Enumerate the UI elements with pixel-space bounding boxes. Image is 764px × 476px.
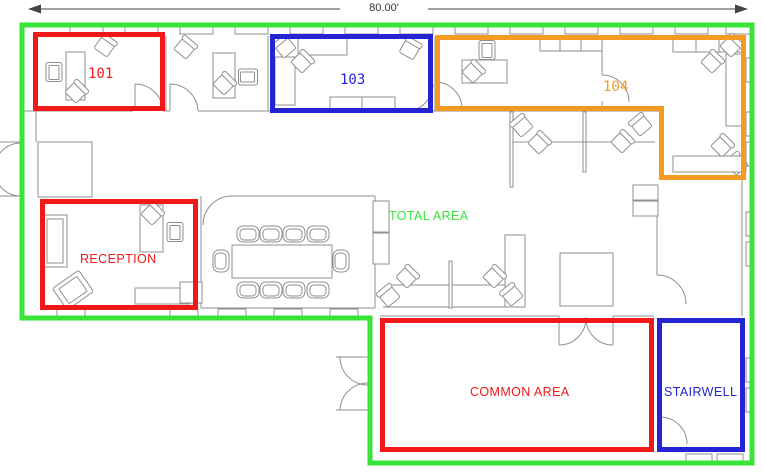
area-overlays [0, 0, 764, 476]
room-104-label[interactable]: 104 [603, 79, 628, 95]
room-101-label[interactable]: 101 [88, 66, 113, 82]
reception-label[interactable]: RECEPTION [80, 252, 157, 266]
total-area-label[interactable]: TOTAL AREA [389, 209, 469, 223]
room-103-label[interactable]: 103 [340, 72, 365, 88]
common-area-label[interactable]: COMMON AREA [470, 385, 570, 399]
dimension-width-label: 80.00' [340, 2, 428, 14]
room-104-outline[interactable] [438, 38, 744, 178]
total-area-outline[interactable] [22, 25, 752, 463]
floorplan-canvas: 80.00' 101 103 104 RECEPTION TOTAL AREA … [0, 0, 764, 476]
stairwell-label[interactable]: STAIRWELL [664, 385, 737, 399]
